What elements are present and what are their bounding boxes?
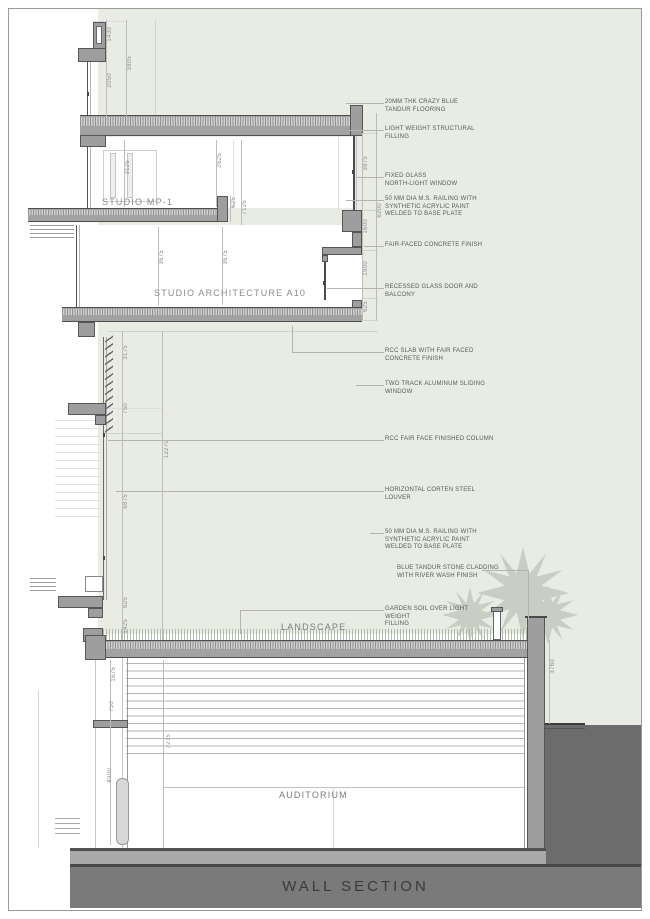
room-label-auditorium: AUDITORIUM xyxy=(279,790,348,800)
dim-label: 625 xyxy=(123,597,129,608)
leader-line xyxy=(348,130,384,131)
dim-label: 3675 xyxy=(223,250,229,265)
dim-label: 3175 xyxy=(123,345,129,360)
dim-label: 750 xyxy=(123,403,129,414)
dim-label: 7275 xyxy=(166,734,172,749)
dim-label: 3875 xyxy=(363,156,369,171)
drawing-sheet: WALL SECTION 1430 3805 2050 3125 2625 62… xyxy=(0,0,650,919)
section-tick xyxy=(323,281,325,285)
dim-label: 625 xyxy=(231,197,237,208)
sheet-border xyxy=(8,8,642,911)
dim-label: 2050 xyxy=(107,73,113,88)
annotation-stone-cladding: BLUE TANDUR STONE CLADDING WITH RIVER WA… xyxy=(397,565,507,580)
leader-line xyxy=(327,288,384,289)
section-tick xyxy=(87,92,89,96)
leader-line xyxy=(108,440,384,441)
leader-line xyxy=(357,177,384,178)
leader-line xyxy=(240,610,384,611)
annotation-rcc-column: RCC FAIR FACE FINISHED COLUMN xyxy=(385,436,495,444)
dim-label: 3805 xyxy=(127,56,133,71)
section-tick xyxy=(103,433,105,437)
annotation-railing-lower: 50 MM DIA M.S. RAILING WITH SYNTHETIC AC… xyxy=(385,529,495,552)
leader-line xyxy=(364,246,384,247)
leader-line xyxy=(528,570,529,620)
dim-line xyxy=(549,640,550,724)
dim-label: 12270 xyxy=(164,440,170,458)
dim-label: 1675 xyxy=(111,667,117,682)
leader-line xyxy=(346,103,384,104)
room-label-studio-a10: STUDIO ARCHITECTURE A10 xyxy=(154,288,306,298)
dim-line xyxy=(162,331,163,640)
dim-line xyxy=(216,140,217,207)
dim-label: 750 xyxy=(109,701,115,712)
dim-label: 3125 xyxy=(125,160,131,175)
annotation-corten-louver: HORIZONTAL CORTEN STEEL LOUVER xyxy=(385,487,495,502)
annotation-flooring: 20MM THK CRAZY BLUE TANDUR FLOORING xyxy=(385,99,495,114)
annotation-rcc-slab: RCC SLAB WITH FAIR FACED CONCRETE FINISH xyxy=(385,348,495,363)
annotation-railing-upper: 50 MM DIA M.S. RAILING WITH SYNTHETIC AC… xyxy=(385,196,495,219)
dim-line xyxy=(110,660,111,845)
dim-label: 625 xyxy=(363,301,369,312)
leader-line xyxy=(292,326,293,352)
leader-line xyxy=(240,610,241,634)
annotation-fair-faced: FAIR-FACED CONCRETE FINISH xyxy=(385,242,495,250)
leader-line xyxy=(292,352,384,353)
dim-label: 1425 xyxy=(123,619,129,634)
annotation-fixed-glass: FIXED GLASS NORTH-LIGHT WINDOW xyxy=(385,173,495,188)
dim-label: 6875 xyxy=(123,494,129,509)
leader-line xyxy=(346,200,384,201)
room-label-studio-mp1: STUDIO MP-1 xyxy=(102,197,173,207)
dim-label: 2625 xyxy=(217,153,223,168)
section-tick xyxy=(352,170,354,174)
dim-label: 1600 xyxy=(363,219,369,234)
dim-line xyxy=(122,331,123,640)
annotation-sliding-window: TWO TRACK ALUMINUM SLIDING WINDOW xyxy=(385,381,495,396)
leader-line xyxy=(116,491,384,492)
dim-label: 3675 xyxy=(159,250,165,265)
dim-label: 6200 xyxy=(377,203,383,218)
leader-line xyxy=(356,385,384,386)
dim-label: 4900 xyxy=(107,768,113,783)
leader-line xyxy=(370,533,384,534)
annotation-filling: LIGHT WEIGHT STRUCTURAL FILLING xyxy=(385,126,495,141)
dim-label: 3760 xyxy=(550,659,556,674)
annotation-garden-soil: GARDEN SOIL OVER LIGHT WEIGHT FILLING xyxy=(385,606,495,629)
room-label-landscape: LANDSCAPE xyxy=(281,622,346,632)
section-tick xyxy=(103,556,105,560)
dim-label: 1900 xyxy=(363,261,369,276)
annotation-recessed-door: RECESSED GLASS DOOR AND BALCONY xyxy=(385,284,495,299)
dim-label: 1430 xyxy=(107,27,113,42)
dim-label: 7125 xyxy=(242,200,248,215)
dim-line xyxy=(163,660,164,845)
